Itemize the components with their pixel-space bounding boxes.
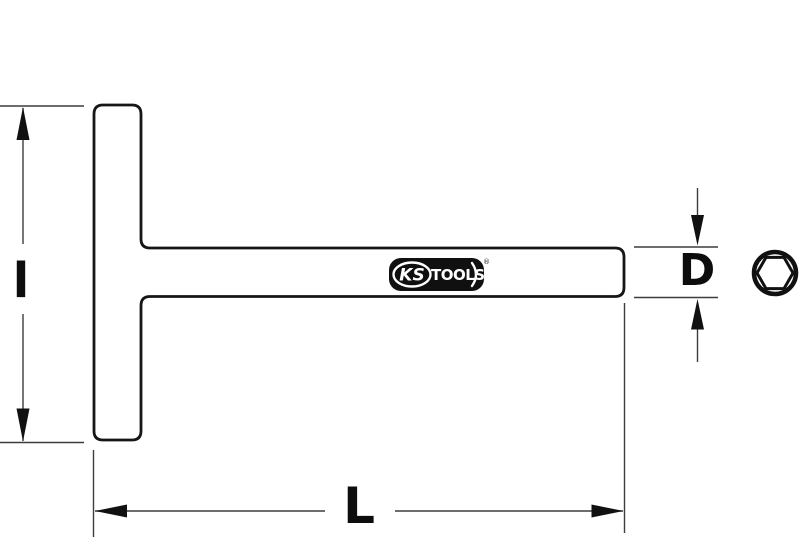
- ks-tools-logo: KS TOOLS ®: [389, 258, 490, 291]
- handle-length-label: l: [13, 253, 29, 309]
- dimension-shaft-diameter: D: [634, 188, 718, 362]
- logo-ks-text: KS: [399, 266, 424, 286]
- arrow-left-icon: [95, 505, 127, 518]
- hexagon-icon: [757, 257, 793, 288]
- total-length-label: L: [343, 477, 375, 535]
- technical-drawing-canvas: l D L: [0, 0, 800, 542]
- arrow-down-icon: [691, 215, 704, 246]
- arrow-up-icon: [691, 299, 704, 330]
- t-wrench-body-outline: [94, 105, 624, 440]
- hex-socket-end-view: [754, 252, 796, 294]
- dimension-total-length: L: [94, 303, 625, 537]
- shaft-diameter-label: D: [679, 245, 716, 296]
- t-wrench-drawing: l D L: [0, 0, 800, 542]
- arrow-right-icon: [592, 505, 624, 518]
- logo-registered-mark: ®: [483, 258, 490, 266]
- dimension-handle-length: l: [0, 106, 84, 443]
- arrow-up-icon: [17, 107, 30, 140]
- arrow-down-icon: [17, 409, 30, 442]
